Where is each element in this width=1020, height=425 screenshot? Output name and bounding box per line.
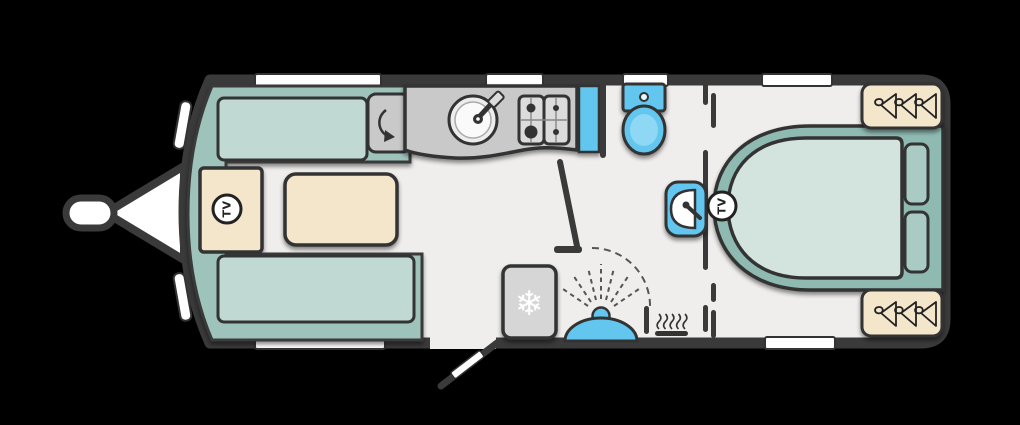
tv-point-front: TV — [213, 195, 241, 223]
hitch-frame — [106, 166, 184, 260]
island-bed — [714, 126, 943, 290]
tow-hitch — [66, 166, 184, 260]
washbasin — [666, 182, 706, 236]
flush-button — [640, 93, 648, 101]
snowflake-icon: ❄ — [515, 284, 544, 324]
lounge-table — [285, 174, 397, 245]
floorplan-canvas: TV — [0, 0, 1020, 425]
bench-cushion-top — [218, 98, 367, 160]
window-kitchen — [486, 74, 543, 86]
tv-label-front: TV — [221, 200, 234, 217]
window-bedroom-bottom — [765, 337, 835, 349]
tall-blue-unit — [579, 86, 599, 152]
caravan-floorplan: TV — [0, 0, 1020, 425]
burner — [553, 105, 559, 111]
burner — [525, 126, 538, 139]
bench-cushion-bottom — [218, 256, 414, 322]
fridge: ❄ — [503, 266, 556, 338]
burner — [553, 129, 559, 135]
tv-point-bedroom: TV — [708, 192, 736, 220]
front-lounge: TV — [188, 86, 422, 340]
hob — [519, 96, 569, 144]
mattress — [728, 138, 902, 278]
entry-door — [430, 335, 497, 386]
toilet-bowl-inner — [630, 114, 658, 146]
doorway-gap — [430, 335, 496, 349]
toilet — [623, 84, 665, 154]
kitchen — [405, 86, 599, 158]
door-panel — [450, 350, 484, 379]
shower-step-wall — [554, 246, 582, 253]
window-bedroom-top — [762, 74, 832, 86]
shower-side-wall — [644, 306, 649, 334]
burner — [527, 104, 536, 113]
window-front-lounge-top — [255, 74, 381, 86]
pillow — [905, 212, 928, 272]
hitch-handle — [66, 198, 114, 228]
tv-label-bedroom: TV — [716, 197, 729, 214]
washroom-wall — [600, 82, 606, 158]
pillow — [905, 144, 928, 204]
